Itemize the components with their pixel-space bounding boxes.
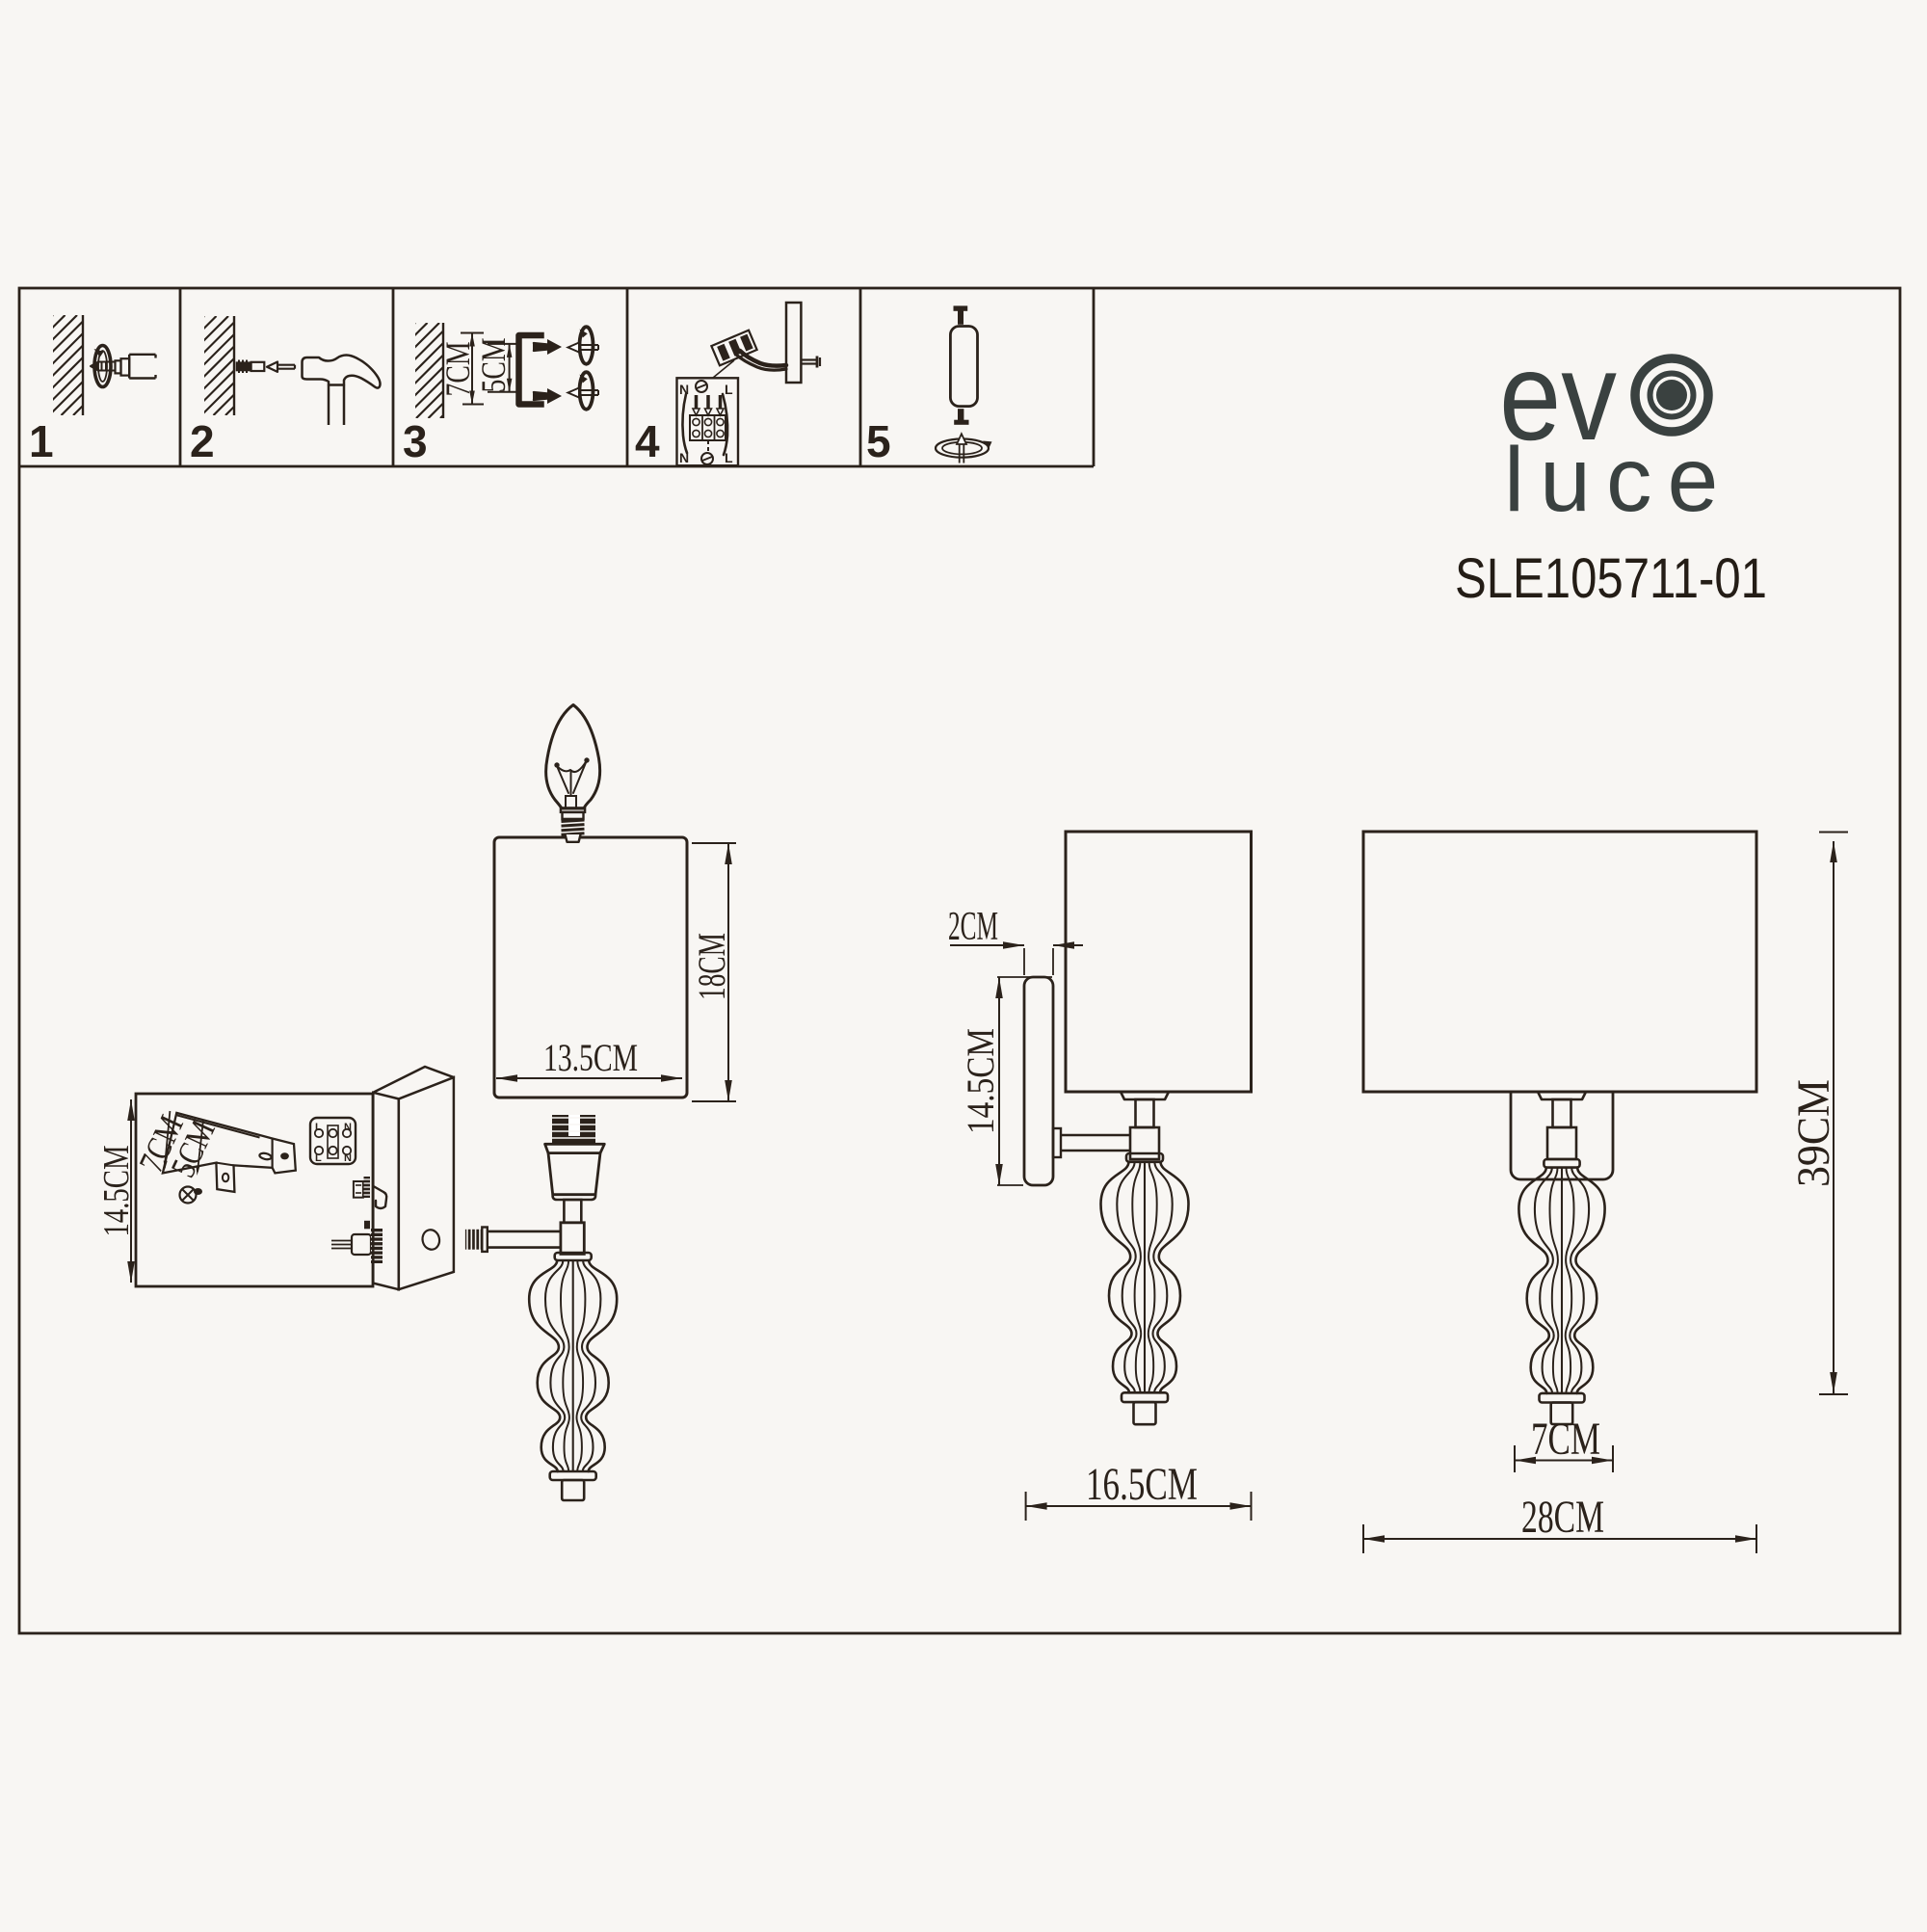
svg-text:18CM: 18CM [690,933,733,1000]
svg-text:5CM: 5CM [474,338,513,393]
svg-text:N: N [679,382,689,397]
svg-text:4: 4 [635,416,660,466]
svg-text:luce: luce [1504,429,1733,531]
svg-text:SLE105711-01: SLE105711-01 [1455,547,1767,610]
svg-text:3: 3 [403,416,428,466]
svg-text:1: 1 [29,416,54,466]
svg-text:2: 2 [190,416,215,466]
svg-text:14.5CM: 14.5CM [959,1028,1002,1134]
svg-text:L: L [725,450,733,465]
svg-text:39CM: 39CM [1788,1079,1839,1187]
svg-text:7CM: 7CM [1531,1414,1600,1465]
svg-text:28CM: 28CM [1521,1492,1604,1543]
svg-text:5: 5 [866,416,891,466]
svg-text:16.5CM: 16.5CM [1086,1459,1198,1510]
svg-text:13.5CM: 13.5CM [543,1036,638,1079]
svg-text:L: L [725,382,733,397]
svg-text:2CM: 2CM [948,905,998,949]
